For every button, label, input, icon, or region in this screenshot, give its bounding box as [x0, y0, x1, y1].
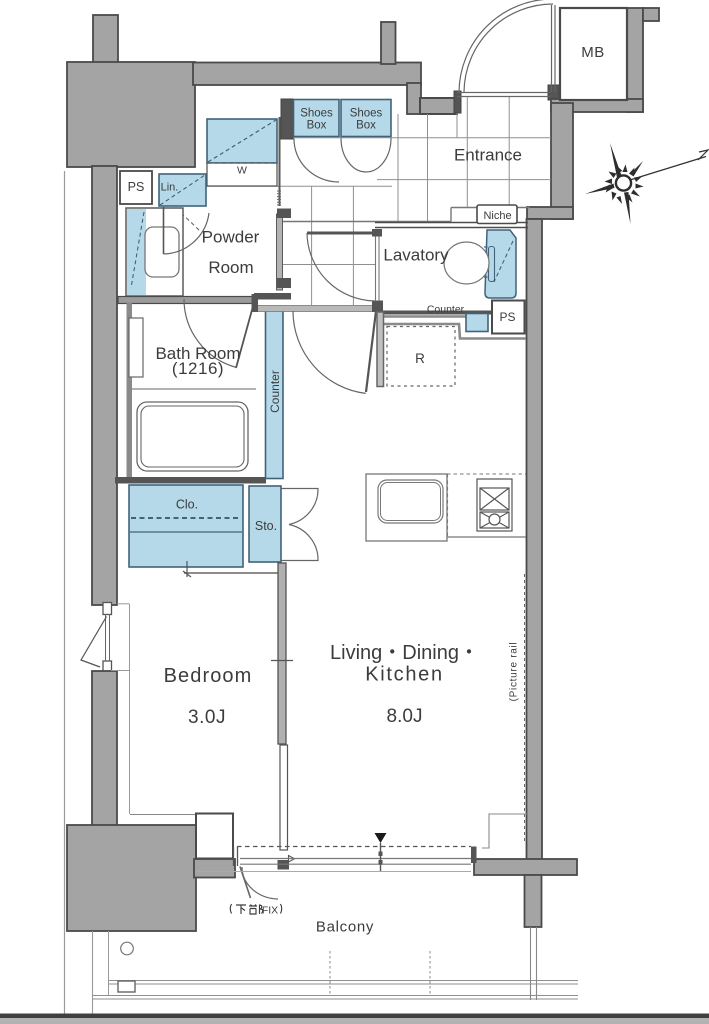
svg-text:Bedroom: Bedroom — [164, 665, 253, 687]
svg-text:(Picture rail: (Picture rail — [509, 642, 520, 702]
svg-text:FIX: FIX — [262, 905, 278, 917]
svg-text:Lin.: Lin. — [161, 182, 179, 194]
svg-text:Lavatory: Lavatory — [383, 246, 449, 265]
svg-text:Balcony: Balcony — [316, 919, 374, 936]
svg-text:Niche: Niche — [483, 210, 511, 222]
svg-text:Living・Dining・: Living・Dining・ — [330, 642, 479, 664]
svg-text:Sto.: Sto. — [255, 519, 277, 533]
svg-text:PS: PS — [499, 310, 515, 324]
svg-text:Box: Box — [356, 120, 376, 132]
svg-text:W: W — [237, 165, 247, 177]
svg-text:Clo.: Clo. — [176, 498, 198, 512]
svg-text:Shoes: Shoes — [350, 108, 383, 120]
svg-text:Kitchen: Kitchen — [365, 664, 444, 686]
svg-text:8.0J: 8.0J — [387, 706, 423, 727]
svg-text:MB: MB — [581, 44, 605, 61]
svg-text:Counter: Counter — [427, 304, 465, 316]
svg-text:Entrance: Entrance — [454, 146, 522, 165]
svg-text:3.0J: 3.0J — [188, 707, 226, 728]
svg-text:Counter: Counter — [268, 370, 282, 413]
svg-text:Powder: Powder — [202, 228, 260, 247]
svg-text:Shoes: Shoes — [300, 108, 333, 120]
svg-text:Room: Room — [208, 258, 253, 277]
svg-text:R: R — [415, 351, 425, 366]
svg-text:PS: PS — [128, 180, 145, 194]
svg-text:Box: Box — [307, 120, 327, 132]
svg-text:(1216): (1216) — [172, 359, 224, 378]
